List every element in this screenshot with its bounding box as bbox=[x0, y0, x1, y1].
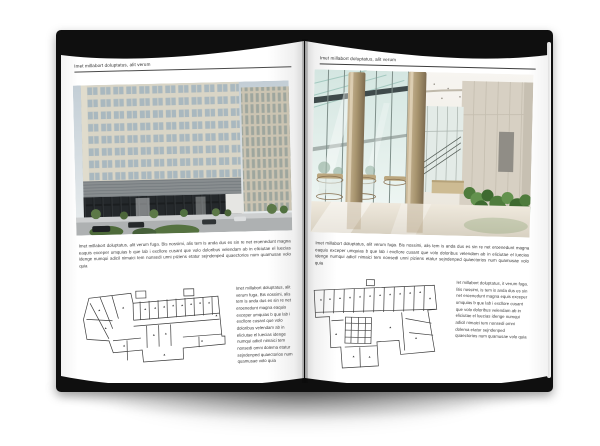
open-book: Imet millabort doluptatus, alit verum bbox=[56, 30, 553, 392]
caption-left: Imet millabort doluptatus, alit verum fu… bbox=[236, 284, 298, 365]
floor-plan-right bbox=[304, 276, 442, 375]
lobby-interior-graphic bbox=[311, 69, 534, 237]
lobby-interior-photo bbox=[311, 69, 534, 237]
building-exterior-graphic bbox=[73, 80, 293, 235]
header-rule-right bbox=[320, 63, 536, 70]
book-mockup-scene: Imet millabort doluptatus, alit verum bbox=[0, 0, 600, 446]
floor-plan-right-graphic bbox=[304, 276, 442, 375]
left-page: Imet millabort doluptatus, alit verum bbox=[61, 39, 304, 383]
building-exterior-photo bbox=[73, 80, 293, 235]
running-header-right: Imet millabort doluptatus, alit verum bbox=[320, 55, 396, 62]
caption-right: Iet millabort doluptatus, it verum fuga.… bbox=[455, 280, 528, 342]
floor-plan-left-graphic bbox=[78, 286, 232, 382]
body-text-right: Imet millabort doluptatus, alit verum fu… bbox=[315, 240, 530, 272]
spine-gutter bbox=[302, 39, 308, 383]
book-shadow-soft bbox=[90, 395, 510, 435]
running-header-left: Imet millabort doluptatus, alit verum bbox=[74, 62, 150, 69]
body-text-left: Imet millabort doluptatus, alit verum fu… bbox=[79, 238, 292, 270]
floor-plan-left bbox=[78, 286, 232, 382]
right-page: Imet millabort doluptatus, alit verum bbox=[305, 39, 548, 383]
